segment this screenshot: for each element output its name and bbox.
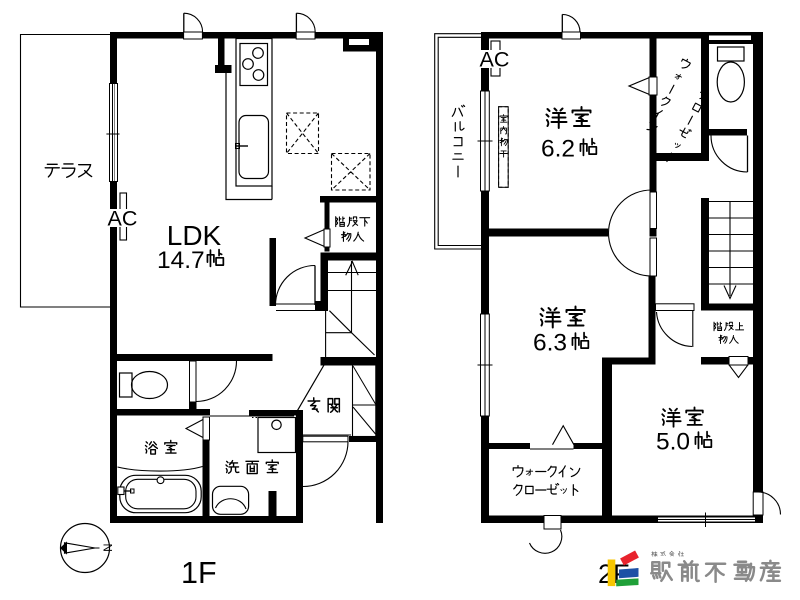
svg-text:1F: 1F xyxy=(181,556,217,590)
svg-text:AC: AC xyxy=(480,48,510,72)
svg-text:6.3: 6.3 xyxy=(533,330,567,357)
svg-text:AC: AC xyxy=(108,207,138,231)
svg-text:6.2: 6.2 xyxy=(541,136,575,163)
svg-text:N: N xyxy=(101,544,113,552)
svg-text:14.7: 14.7 xyxy=(157,247,205,274)
svg-text:5.0: 5.0 xyxy=(656,429,690,456)
